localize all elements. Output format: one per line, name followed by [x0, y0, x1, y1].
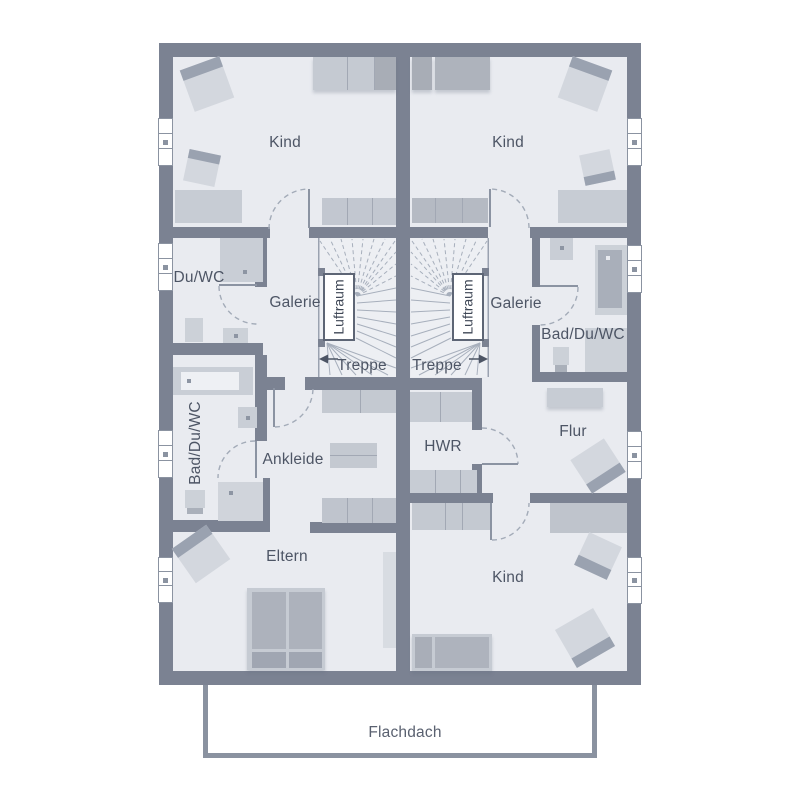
room-label-kind-bottom: Kind [492, 569, 524, 587]
room-label-kind-top-left: Kind [269, 134, 301, 152]
room-label-ankleide: Ankleide [262, 451, 323, 469]
window [158, 118, 173, 166]
room-label-kind-top-right: Kind [492, 134, 524, 152]
luftraum-label: Luftraum [331, 279, 347, 334]
flachdach-outline: Flachdach [203, 685, 597, 758]
room-label-treppe-left: Treppe [337, 357, 387, 375]
floor-plan: Luftraum Luftraum Kind Kind Du/WC Galeri… [0, 0, 800, 800]
luftraum-box-right: Luftraum [452, 273, 484, 341]
window [158, 243, 173, 291]
window [627, 118, 642, 166]
room-label-treppe-right: Treppe [412, 357, 462, 375]
window [158, 557, 173, 603]
flachdach-label: Flachdach [368, 724, 441, 742]
room-label-hwr: HWR [424, 438, 462, 456]
room-label-eltern: Eltern [266, 548, 308, 566]
doors-stairs-overlay [0, 0, 800, 800]
window [158, 430, 173, 478]
room-label-flur: Flur [559, 423, 587, 441]
window [627, 557, 642, 604]
window [627, 431, 642, 479]
window [627, 245, 642, 293]
room-label-bad-du-wc-right: Bad/Du/WC [541, 326, 625, 344]
room-label-du-wc: Du/WC [174, 269, 225, 287]
room-label-galerie-right: Galerie [490, 295, 541, 313]
room-label-bad-du-wc-left: Bad/Du/WC [187, 401, 205, 485]
room-label-galerie-left: Galerie [269, 294, 320, 312]
luftraum-label: Luftraum [460, 279, 476, 334]
luftraum-box-left: Luftraum [323, 273, 355, 341]
